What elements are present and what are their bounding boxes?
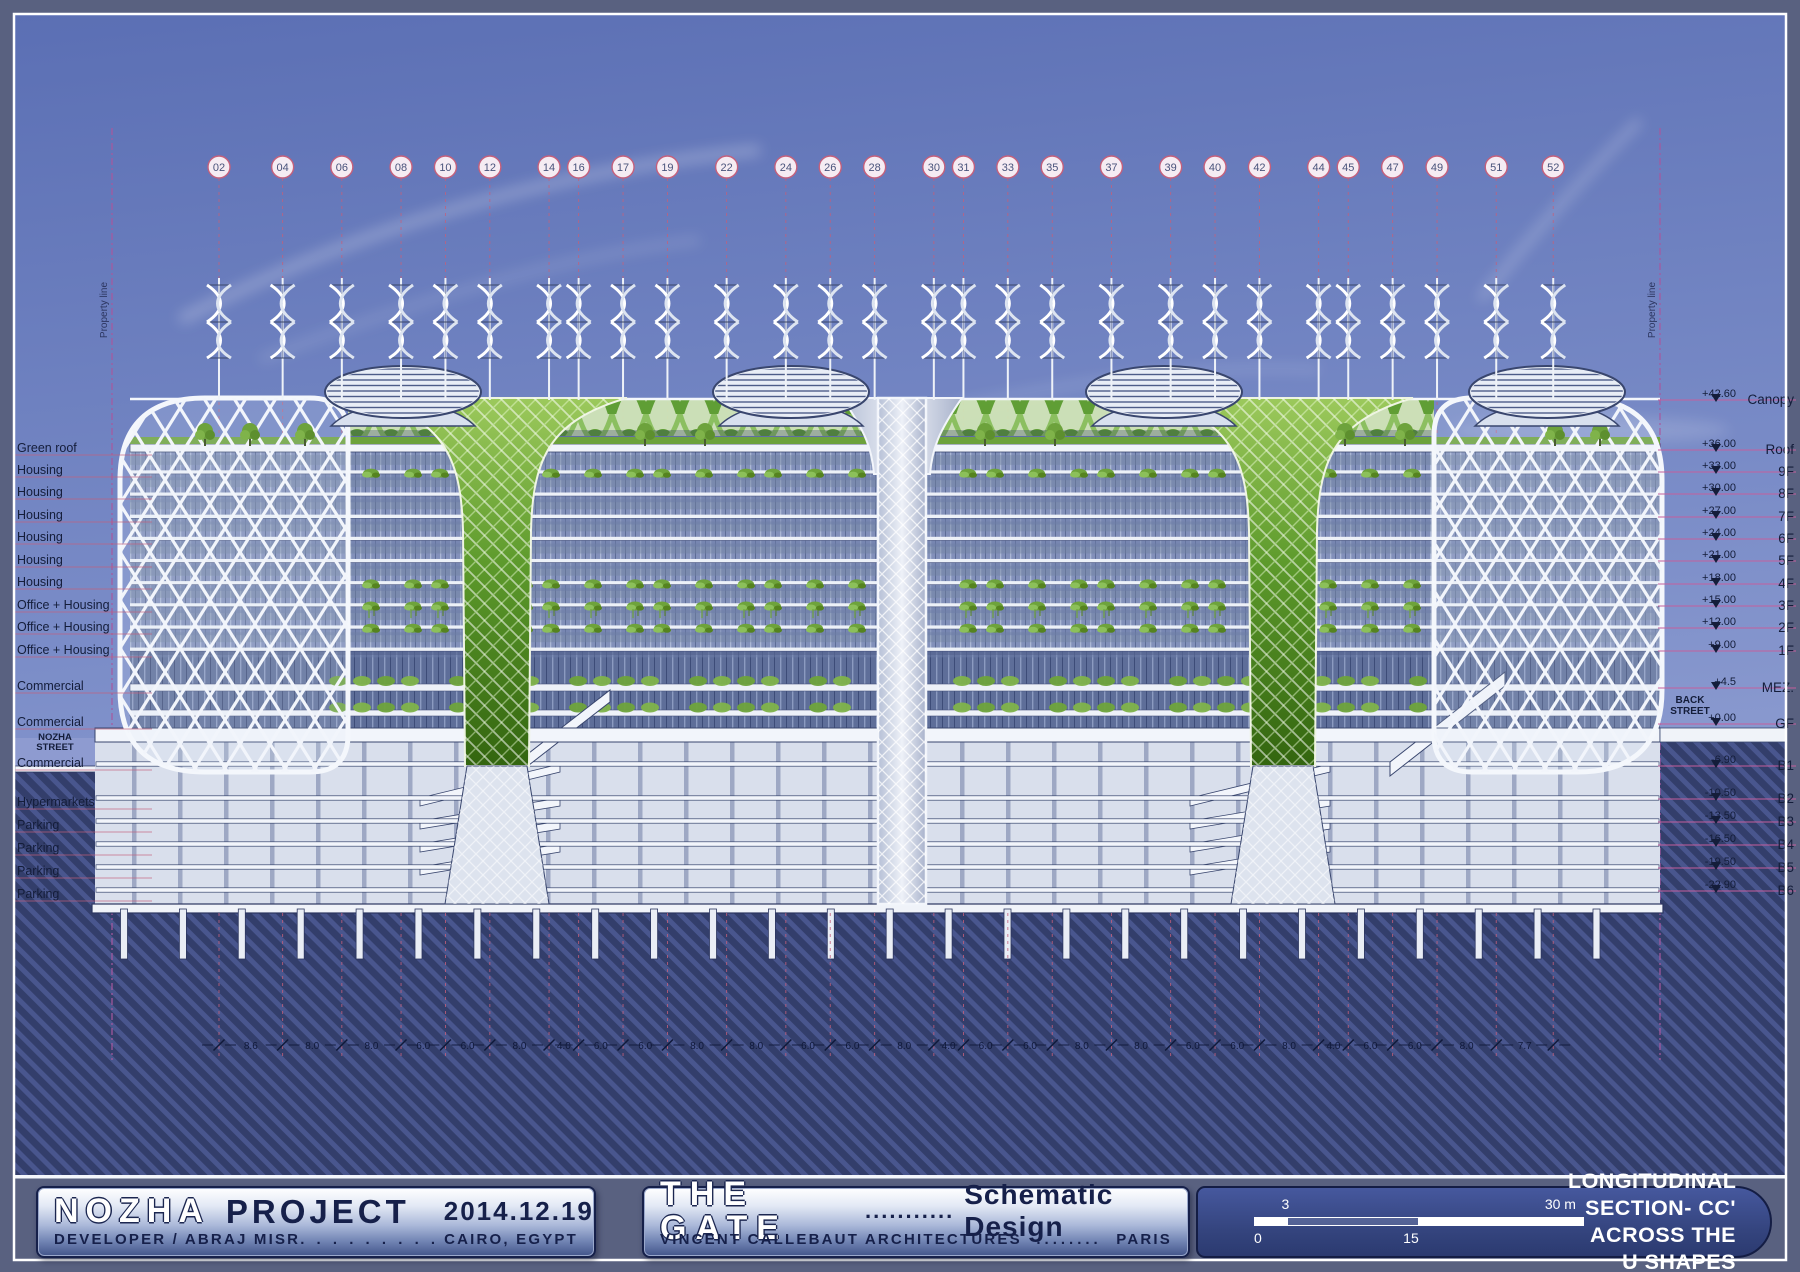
plant — [747, 473, 755, 478]
plant — [1097, 627, 1107, 633]
plant — [542, 582, 552, 588]
hedge — [761, 703, 779, 713]
pile-icon — [1122, 909, 1129, 959]
plant — [1107, 473, 1115, 478]
scale-segment — [1419, 1217, 1584, 1226]
plant — [816, 628, 824, 633]
plant — [1139, 582, 1149, 588]
left-label: Parking — [17, 887, 59, 901]
hedge — [593, 676, 611, 686]
plant — [858, 583, 866, 588]
grid-bubble-number: 35 — [1046, 162, 1058, 174]
left-label: Parking — [17, 864, 59, 878]
plant — [1149, 628, 1157, 633]
dimension-value: 4.0 — [1326, 1041, 1340, 1052]
grid-bubble-number: 12 — [484, 162, 496, 174]
pile-icon — [1357, 909, 1364, 959]
plant — [764, 627, 774, 633]
scale-segment — [1287, 1217, 1419, 1226]
hedge — [617, 703, 635, 713]
grid-bubble-number: 37 — [1105, 162, 1117, 174]
plant — [858, 473, 866, 478]
plant — [806, 472, 816, 478]
plant — [441, 628, 449, 633]
title-panel-section: 3 30 m 0 15 LONGITUDINAL SECTION- CC' AC… — [1196, 1186, 1772, 1258]
drawing-sheet: 0204060810121416171922242628303133353739… — [0, 0, 1800, 1272]
pile-icon — [768, 909, 775, 959]
pile-icon — [592, 909, 599, 959]
pile-icon — [1534, 909, 1541, 959]
plant — [1097, 472, 1107, 478]
plant — [705, 473, 713, 478]
plant — [737, 627, 747, 633]
plant — [414, 473, 422, 478]
plant — [1413, 473, 1421, 478]
pile-icon — [121, 909, 128, 959]
left-label: Housing — [17, 463, 63, 477]
left-label: Commercial — [17, 715, 84, 729]
grid-bubble-number: 24 — [780, 162, 792, 174]
plant — [986, 605, 996, 611]
plant — [986, 582, 996, 588]
plant — [1181, 627, 1191, 633]
plant — [441, 605, 449, 610]
grid-bubble-number: 33 — [1002, 162, 1014, 174]
pile-icon — [179, 909, 186, 959]
plant — [653, 627, 663, 633]
plant — [653, 605, 663, 611]
section-title: LONGITUDINAL SECTION- CC' ACROSS THE U S… — [1568, 1168, 1770, 1272]
plant — [1191, 583, 1199, 588]
plant — [542, 472, 552, 478]
plant — [552, 628, 560, 633]
plant — [584, 627, 594, 633]
plant — [1107, 583, 1115, 588]
plant — [552, 583, 560, 588]
dimension-value: 6.0 — [1230, 1041, 1244, 1052]
left-label: Housing — [17, 485, 63, 499]
plant — [1038, 583, 1046, 588]
plant — [816, 605, 824, 610]
hedge — [1217, 703, 1235, 713]
grid-bubble-number: 42 — [1253, 162, 1265, 174]
plant — [1319, 605, 1329, 611]
pile-icon — [886, 909, 893, 959]
plant — [626, 627, 636, 633]
plant — [1361, 605, 1371, 611]
plant — [663, 628, 671, 633]
plant — [1329, 583, 1337, 588]
plant — [848, 605, 858, 611]
plant — [1208, 472, 1218, 478]
dimension-value: 6.0 — [638, 1041, 652, 1052]
title-panel-project: NOZHA PROJECT 2014.12.19 DEVELOPER / ABR… — [36, 1186, 596, 1258]
plant — [626, 472, 636, 478]
grid-bubble-number: 19 — [661, 162, 673, 174]
dimension-value: 8.0 — [897, 1041, 911, 1052]
plant — [1028, 582, 1038, 588]
plant — [1208, 627, 1218, 633]
plant — [1329, 628, 1337, 633]
plant — [372, 473, 380, 478]
pile-icon — [238, 909, 245, 959]
plant — [1329, 605, 1337, 610]
plant — [362, 627, 372, 633]
hedge — [1049, 676, 1067, 686]
hedge — [761, 676, 779, 686]
left-label: Office + Housing — [17, 643, 110, 657]
scale-label-30m: 30 m — [1545, 1196, 1576, 1212]
plant — [594, 628, 602, 633]
plant — [1403, 582, 1413, 588]
plant — [695, 582, 705, 588]
plant — [431, 605, 441, 611]
dimension-value: 6.0 — [979, 1041, 993, 1052]
left-label: Parking — [17, 818, 59, 832]
plant — [594, 583, 602, 588]
plant — [705, 605, 713, 610]
dimension-value: 8.0 — [1134, 1041, 1148, 1052]
left-label: Housing — [17, 553, 63, 567]
plant — [764, 472, 774, 478]
grid-bubble-number: 02 — [213, 162, 225, 174]
plant — [414, 583, 422, 588]
plant — [996, 605, 1004, 610]
hedge — [809, 676, 827, 686]
plant — [594, 473, 602, 478]
plant — [996, 473, 1004, 478]
plant — [636, 605, 644, 610]
plant — [626, 605, 636, 611]
grid-bubble-number: 26 — [824, 162, 836, 174]
plant — [1107, 605, 1115, 610]
pile-icon — [710, 909, 717, 959]
leader-dots: ........ — [1022, 1231, 1116, 1248]
plant — [1038, 628, 1046, 633]
plant — [1218, 605, 1226, 610]
plant — [663, 583, 671, 588]
plant — [959, 582, 969, 588]
dimension-value: 6.0 — [1408, 1041, 1422, 1052]
dimension-value: 8.0 — [1282, 1041, 1296, 1052]
plant — [1097, 605, 1107, 611]
section-title-line1: LONGITUDINAL SECTION- CC' — [1568, 1168, 1736, 1222]
scale-bar-segments — [1254, 1217, 1584, 1226]
plant — [695, 627, 705, 633]
left-label: Office + Housing — [17, 620, 110, 634]
plant — [737, 472, 747, 478]
scale-label-0: 0 — [1254, 1230, 1262, 1246]
plant — [1218, 473, 1226, 478]
dimension-value: 6.0 — [1186, 1041, 1200, 1052]
titlebar-divider — [14, 1175, 1786, 1179]
plant — [584, 582, 594, 588]
hedge — [1121, 703, 1139, 713]
dimension-value: 6.0 — [845, 1041, 859, 1052]
dimension-value: 8.0 — [690, 1041, 704, 1052]
hedge — [1361, 676, 1379, 686]
pile-icon — [415, 909, 422, 959]
plant — [1319, 627, 1329, 633]
dimension-value: 7.7 — [1518, 1041, 1532, 1052]
left-label: Parking — [17, 841, 59, 855]
developer-label: DEVELOPER / ABRAJ MISR — [54, 1231, 300, 1248]
plant — [1191, 628, 1199, 633]
plant — [431, 627, 441, 633]
plant — [441, 583, 449, 588]
hedge — [713, 676, 731, 686]
plant — [431, 582, 441, 588]
plant — [636, 473, 644, 478]
grid-bubble-number: 52 — [1547, 162, 1559, 174]
plant — [1371, 473, 1379, 478]
left-label: Office + Housing — [17, 598, 110, 612]
grid-bubble-number: 44 — [1313, 162, 1325, 174]
hedge — [377, 703, 395, 713]
plant — [552, 605, 560, 610]
plant — [542, 605, 552, 611]
plant — [959, 605, 969, 611]
grid-bubble-number: 17 — [617, 162, 629, 174]
left-label: Commercial — [17, 679, 84, 693]
plant — [636, 583, 644, 588]
hedge — [401, 703, 419, 713]
plant — [1149, 583, 1157, 588]
property-line-label: Property line — [1647, 281, 1658, 338]
hedge — [377, 676, 395, 686]
scale-bar: 3 30 m 0 15 — [1254, 1194, 1568, 1250]
plant — [404, 627, 414, 633]
hedge — [977, 703, 995, 713]
pile-icon — [533, 909, 540, 959]
plant — [1403, 627, 1413, 633]
hedge — [1001, 703, 1019, 713]
hedge — [1073, 703, 1091, 713]
dimension-value: 8.0 — [1460, 1041, 1474, 1052]
pile-icon — [1240, 909, 1247, 959]
plant — [362, 582, 372, 588]
pile-icon — [1475, 909, 1482, 959]
u-shape-shell-left — [120, 398, 348, 772]
plant — [441, 473, 449, 478]
plant — [986, 472, 996, 478]
plant — [1403, 472, 1413, 478]
dimension-value: 6.0 — [1363, 1041, 1377, 1052]
plant — [653, 582, 663, 588]
hedge — [953, 676, 971, 686]
hedge — [641, 703, 659, 713]
hedge — [737, 703, 755, 713]
grid-bubble-number: 40 — [1209, 162, 1221, 174]
grid-bubble-number: 10 — [439, 162, 451, 174]
hedge — [953, 703, 971, 713]
left-label: Housing — [17, 530, 63, 544]
hedge — [1001, 676, 1019, 686]
plant — [1080, 628, 1088, 633]
dimension-value: 4.0 — [557, 1041, 571, 1052]
plant — [695, 472, 705, 478]
plant — [747, 628, 755, 633]
dimension-value: 6.0 — [1023, 1041, 1037, 1052]
hedge — [833, 703, 851, 713]
plant — [636, 628, 644, 633]
hedge — [1169, 703, 1187, 713]
plant — [737, 582, 747, 588]
level-label: Roof — [1765, 442, 1794, 457]
plant — [1149, 605, 1157, 610]
left-label: Housing — [17, 575, 63, 589]
title-panel-design: THE GATE ........... Schematic Design VI… — [642, 1186, 1190, 1258]
architect-label: VINCENT CALLEBAUT ARCHITECTURES — [660, 1231, 1022, 1248]
grid-bubble-number: 30 — [928, 162, 940, 174]
plant — [1218, 583, 1226, 588]
plant — [959, 627, 969, 633]
hedge — [977, 676, 995, 686]
plant — [806, 605, 816, 611]
plant — [806, 582, 816, 588]
plant — [1181, 472, 1191, 478]
section-title-line2: ACROSS THE U SHAPES — [1568, 1222, 1736, 1272]
plant — [372, 628, 380, 633]
plant — [1149, 473, 1157, 478]
plant — [1361, 582, 1371, 588]
dimension-value: 8.0 — [512, 1041, 526, 1052]
plant — [737, 605, 747, 611]
plant — [372, 583, 380, 588]
leader-dots: . . . . . . . . . . . . . . . . . — [300, 1231, 444, 1248]
plant — [1361, 627, 1371, 633]
plant — [663, 605, 671, 610]
section-drawing: 0204060810121416171922242628303133353739… — [0, 0, 1800, 1272]
plant — [414, 605, 422, 610]
plant — [1097, 582, 1107, 588]
plant — [848, 582, 858, 588]
hedge — [569, 676, 587, 686]
hedge — [689, 676, 707, 686]
hedge — [689, 703, 707, 713]
pile-icon — [1181, 909, 1188, 959]
hedge — [617, 676, 635, 686]
plant — [552, 473, 560, 478]
level-label: GF — [1775, 716, 1794, 731]
dimension-value: 8.0 — [749, 1041, 763, 1052]
hedge — [1337, 676, 1355, 686]
pile-icon — [1299, 909, 1306, 959]
hedge — [737, 676, 755, 686]
pile-icon — [1593, 909, 1600, 959]
plant — [404, 605, 414, 611]
dimension-value: 4.0 — [942, 1041, 956, 1052]
plant — [1028, 605, 1038, 611]
hedge — [353, 703, 371, 713]
plant — [584, 605, 594, 611]
plant — [1080, 583, 1088, 588]
plant — [969, 605, 977, 610]
hedge — [1097, 676, 1115, 686]
plant — [1403, 605, 1413, 611]
plant — [584, 472, 594, 478]
dimension-value: 8.0 — [364, 1041, 378, 1052]
hedge — [353, 676, 371, 686]
grid-bubble-number: 16 — [573, 162, 585, 174]
leader-dots: ........... — [865, 1198, 954, 1224]
plant — [1181, 605, 1191, 611]
pile-icon — [1063, 909, 1070, 959]
pile-icon — [651, 909, 658, 959]
architect-city-label: PARIS — [1116, 1231, 1172, 1248]
dimension-value: 6.0 — [594, 1041, 608, 1052]
plant — [996, 628, 1004, 633]
plant — [848, 472, 858, 478]
hedge — [401, 676, 419, 686]
grid-bubble-number: 14 — [543, 162, 555, 174]
hedge — [1193, 703, 1211, 713]
plant — [1139, 472, 1149, 478]
plant — [1361, 472, 1371, 478]
plant — [806, 627, 816, 633]
level-label: MEZ. — [1762, 680, 1794, 695]
plant — [816, 583, 824, 588]
plant — [1191, 473, 1199, 478]
left-label: Housing — [17, 508, 63, 522]
plant — [1139, 627, 1149, 633]
plant — [1139, 605, 1149, 611]
plant — [362, 472, 372, 478]
plant — [774, 628, 782, 633]
plant — [858, 605, 866, 610]
project-name-solid: PROJECT — [226, 1195, 410, 1228]
back-street-surface — [1660, 728, 1786, 742]
grid-bubble-number: 47 — [1387, 162, 1399, 174]
left-label: Green roof — [17, 441, 77, 455]
plant — [959, 472, 969, 478]
plant — [1413, 605, 1421, 610]
pile-icon — [474, 909, 481, 959]
back-street-label: BACK — [1676, 695, 1706, 706]
plant — [404, 582, 414, 588]
grid-bubble-number: 04 — [277, 162, 289, 174]
divider — [425, 1195, 435, 1227]
plant — [1038, 473, 1046, 478]
back-street-label: STREET — [1670, 706, 1709, 717]
hedge — [1193, 676, 1211, 686]
property-line-label: Property line — [99, 281, 110, 338]
plant — [653, 472, 663, 478]
plant — [1107, 628, 1115, 633]
plant — [1208, 605, 1218, 611]
plant — [774, 605, 782, 610]
hedge — [1217, 676, 1235, 686]
plant — [1070, 627, 1080, 633]
plant — [1181, 582, 1191, 588]
hedge — [1361, 703, 1379, 713]
plant — [969, 628, 977, 633]
nozha-street-label: STREET — [36, 742, 74, 753]
plant — [705, 628, 713, 633]
plant — [1371, 583, 1379, 588]
plant — [764, 605, 774, 611]
dimension-value: 8.6 — [244, 1041, 258, 1052]
scale-label-15: 15 — [1403, 1230, 1419, 1246]
plant — [986, 627, 996, 633]
hedge — [1049, 703, 1067, 713]
plant — [1028, 627, 1038, 633]
hedge — [1409, 676, 1427, 686]
hedge — [809, 703, 827, 713]
grid-bubble-number: 45 — [1342, 162, 1354, 174]
hedge — [1073, 676, 1091, 686]
pile-icon — [297, 909, 304, 959]
